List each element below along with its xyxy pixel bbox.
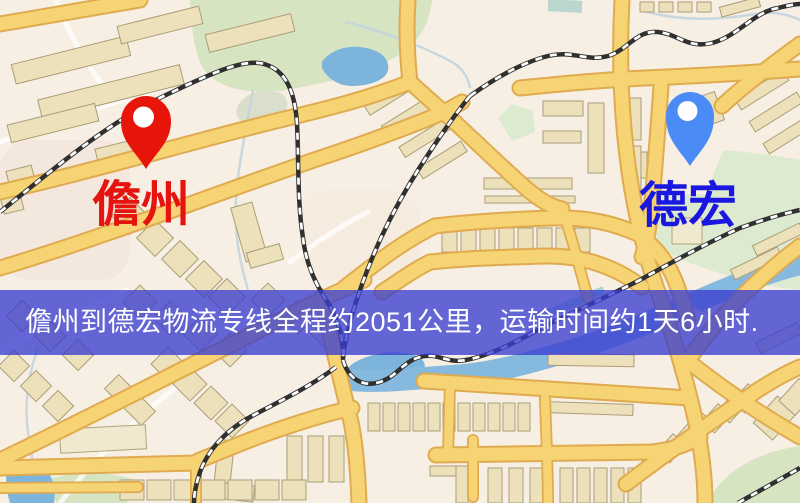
map-canvas[interactable]: 儋州 德宏 儋州到德宏物流专线全程约2051公里，运输时间约1天6小时.	[0, 0, 800, 503]
origin-label: 儋州	[92, 177, 190, 232]
destination-label: 德宏	[639, 178, 737, 233]
route-banner: 儋州到德宏物流专线全程约2051公里，运输时间约1天6小时.	[0, 290, 800, 355]
route-banner-text: 儋州到德宏物流专线全程约2051公里，运输时间约1天6小时.	[0, 290, 759, 355]
